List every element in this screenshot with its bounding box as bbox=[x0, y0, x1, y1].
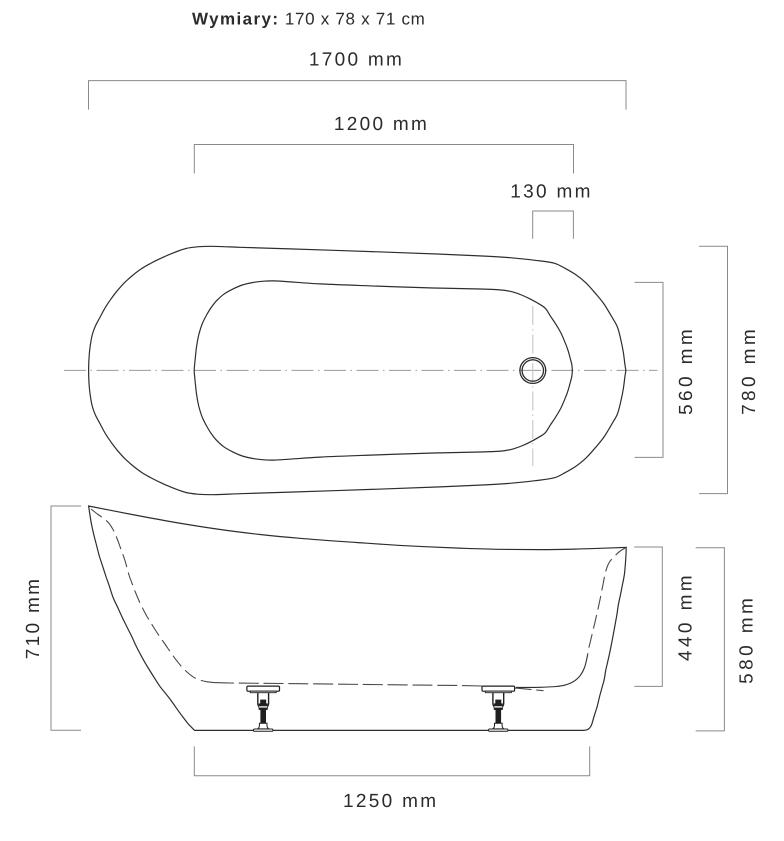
svg-text:710 mm: 710 mm bbox=[23, 577, 44, 659]
svg-text:1200 mm: 1200 mm bbox=[334, 114, 429, 135]
svg-text:560 mm: 560 mm bbox=[676, 326, 697, 415]
svg-text:780 mm: 780 mm bbox=[739, 326, 760, 415]
svg-text:Wymiary: 170 x 78 x 71 cm: Wymiary: 170 x 78 x 71 cm bbox=[192, 9, 426, 28]
svg-text:580 mm: 580 mm bbox=[736, 595, 757, 684]
svg-text:1700 mm: 1700 mm bbox=[309, 49, 404, 70]
svg-text:130 mm: 130 mm bbox=[510, 181, 592, 202]
svg-text:440 mm: 440 mm bbox=[676, 572, 697, 661]
svg-text:1250 mm: 1250 mm bbox=[343, 791, 438, 812]
